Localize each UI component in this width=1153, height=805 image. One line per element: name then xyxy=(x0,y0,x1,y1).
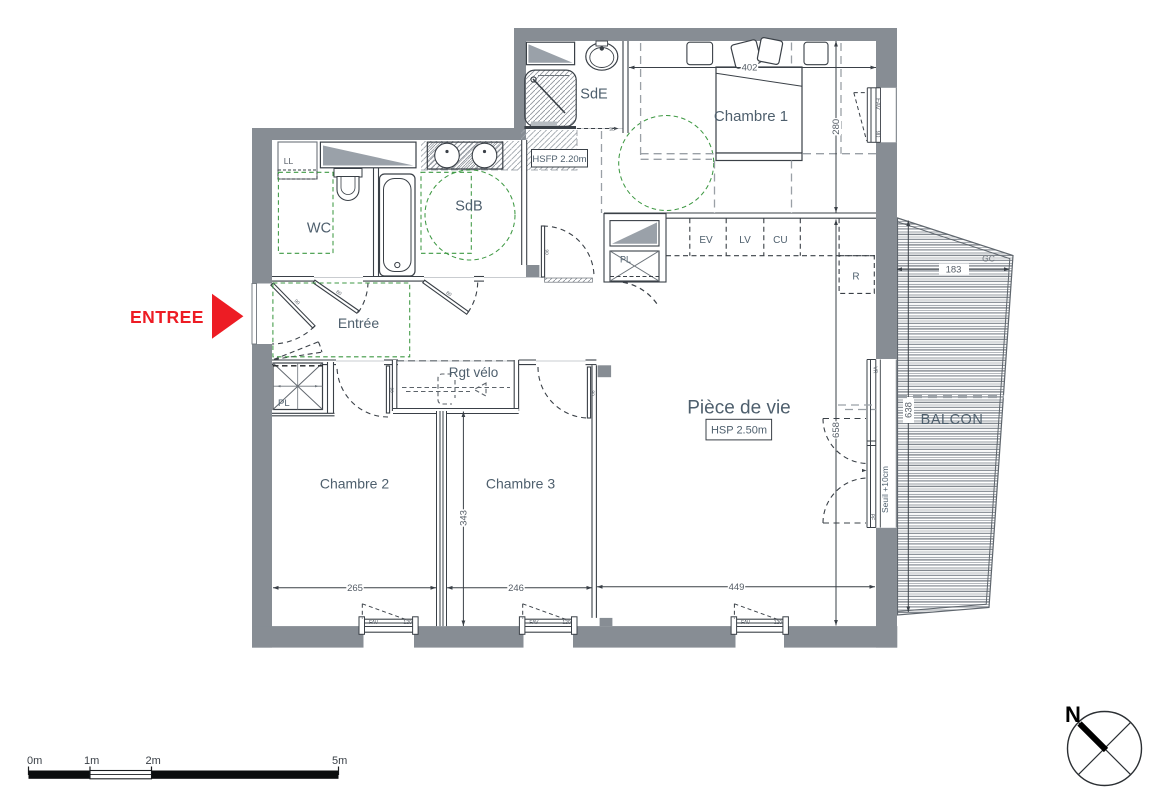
svg-text:265: 265 xyxy=(347,583,363,594)
svg-text:638: 638 xyxy=(904,402,915,418)
svg-text:ENTREE: ENTREE xyxy=(130,307,204,327)
svg-text:120: 120 xyxy=(403,620,412,626)
svg-text:N: N xyxy=(1065,702,1081,727)
svg-text:HSFP 2.20m: HSFP 2.20m xyxy=(532,154,586,165)
svg-text:LV: LV xyxy=(739,235,751,246)
svg-text:5m: 5m xyxy=(332,755,347,767)
svg-text:658: 658 xyxy=(831,422,842,438)
svg-text:183: 183 xyxy=(946,265,962,276)
svg-text:449: 449 xyxy=(729,582,745,593)
svg-text:SdB: SdB xyxy=(455,199,482,215)
svg-text:402: 402 xyxy=(742,63,758,74)
svg-text:GC: GC xyxy=(982,254,995,264)
svg-text:R: R xyxy=(852,272,859,283)
svg-text:PL: PL xyxy=(278,398,290,409)
svg-text:0m: 0m xyxy=(27,755,42,767)
svg-text:WC: WC xyxy=(307,221,331,237)
svg-text:Chambre 2: Chambre 2 xyxy=(320,476,389,492)
svg-text:VR: VR xyxy=(872,367,878,374)
svg-text:2m: 2m xyxy=(146,755,161,767)
svg-text:EV: EV xyxy=(699,235,713,246)
svg-text:90: 90 xyxy=(874,131,880,138)
svg-text:120: 120 xyxy=(562,620,571,626)
svg-text:Pièce de vie: Pièce de vie xyxy=(687,398,791,419)
svg-text:FAV: FAV xyxy=(369,620,379,626)
svg-text:Chambre 1: Chambre 1 xyxy=(714,108,788,125)
svg-text:120: 120 xyxy=(774,620,783,626)
svg-text:343: 343 xyxy=(458,510,469,526)
svg-text:HSP 2.50m: HSP 2.50m xyxy=(711,425,767,437)
svg-text:Rgt vélo: Rgt vélo xyxy=(449,365,499,380)
svg-text:FAV: FAV xyxy=(874,98,881,110)
svg-text:PL: PL xyxy=(620,255,631,265)
svg-text:Entrée: Entrée xyxy=(338,315,379,331)
svg-text:246: 246 xyxy=(508,583,524,594)
svg-text:1m: 1m xyxy=(84,755,99,767)
svg-text:90: 90 xyxy=(609,127,615,133)
svg-text:Seuil +10cm: Seuil +10cm xyxy=(880,466,890,513)
svg-text:SdE: SdE xyxy=(580,87,608,103)
svg-text:FAV: FAV xyxy=(529,620,539,626)
svg-text:BALCON: BALCON xyxy=(921,412,984,428)
svg-text:PF: PF xyxy=(869,514,875,520)
svg-text:LL: LL xyxy=(284,156,294,166)
svg-text:90: 90 xyxy=(389,387,395,393)
svg-text:FAV: FAV xyxy=(741,620,751,626)
svg-text:CU: CU xyxy=(773,235,787,246)
svg-text:280: 280 xyxy=(831,119,842,135)
svg-text:Chambre 3: Chambre 3 xyxy=(486,476,555,492)
svg-text:90: 90 xyxy=(590,390,596,396)
svg-text:90: 90 xyxy=(544,249,550,255)
